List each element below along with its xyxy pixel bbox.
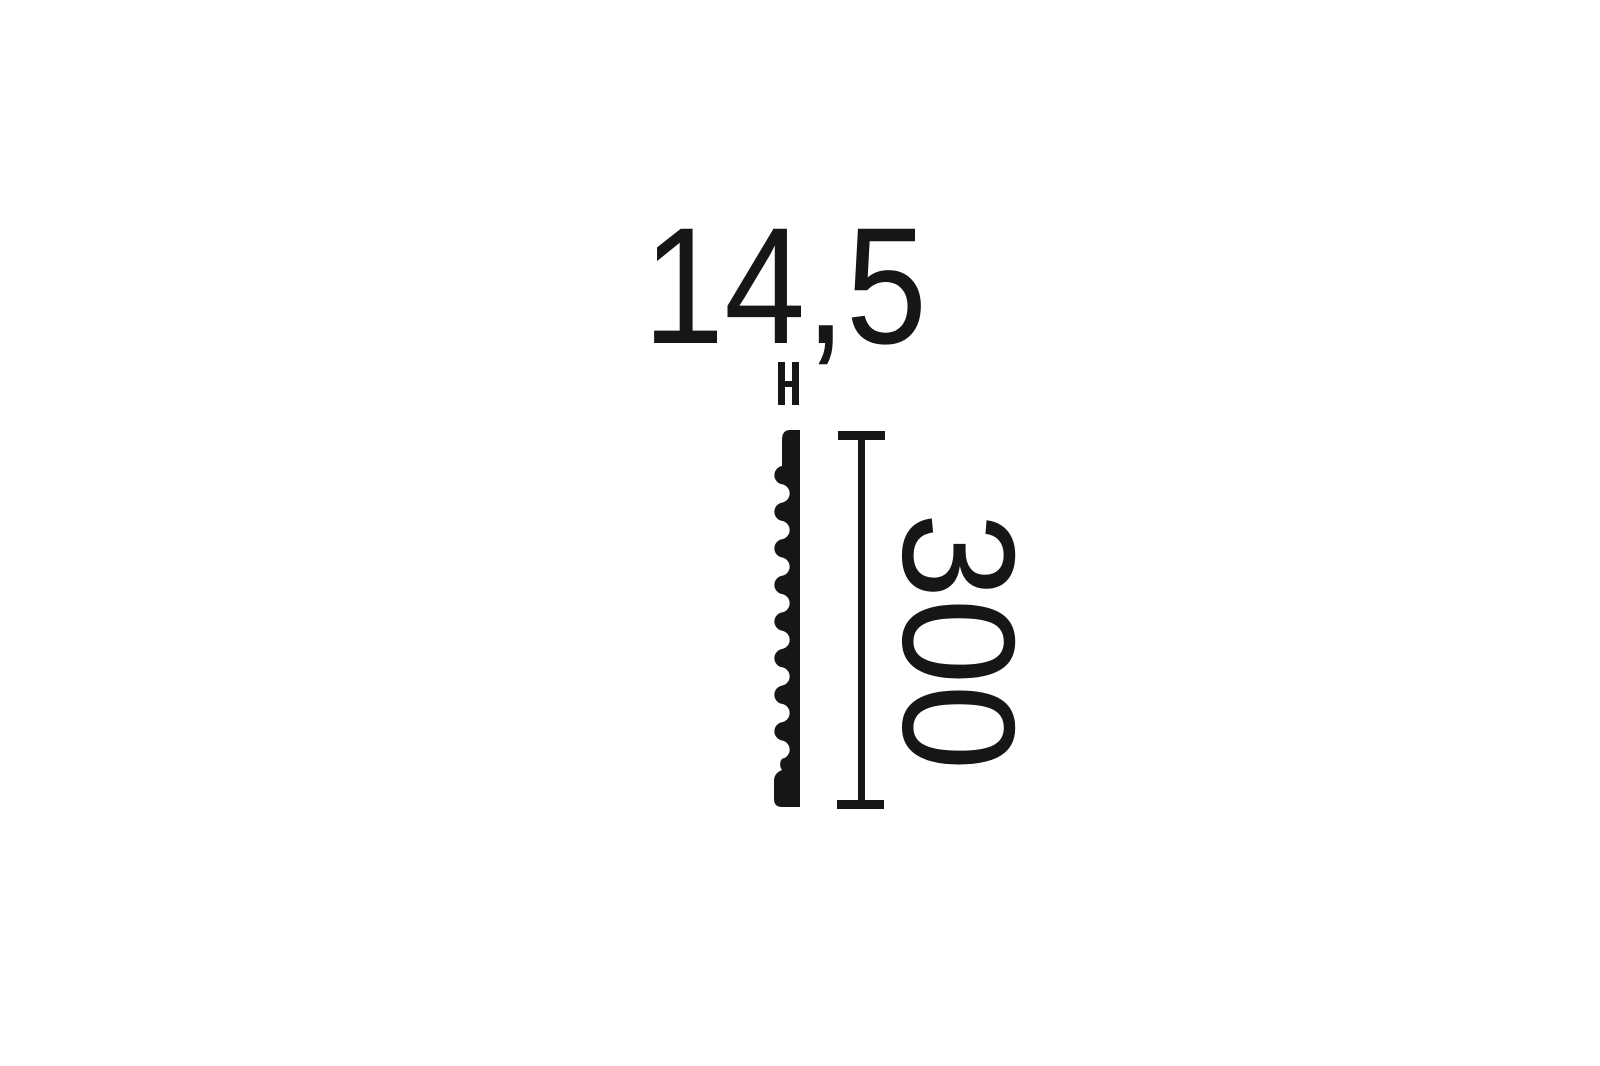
dimension-diagram: 14,5 300 (0, 0, 1600, 1066)
height-dimension-label: 300 (870, 513, 1049, 771)
width-dimension-label: 14,5 (643, 194, 927, 379)
height-dimension-bottom-cap (837, 800, 884, 809)
width-marker-crossbar (778, 381, 799, 387)
diagram-canvas: 14,5 300 (0, 0, 1600, 1066)
height-dimension-line (858, 436, 865, 804)
